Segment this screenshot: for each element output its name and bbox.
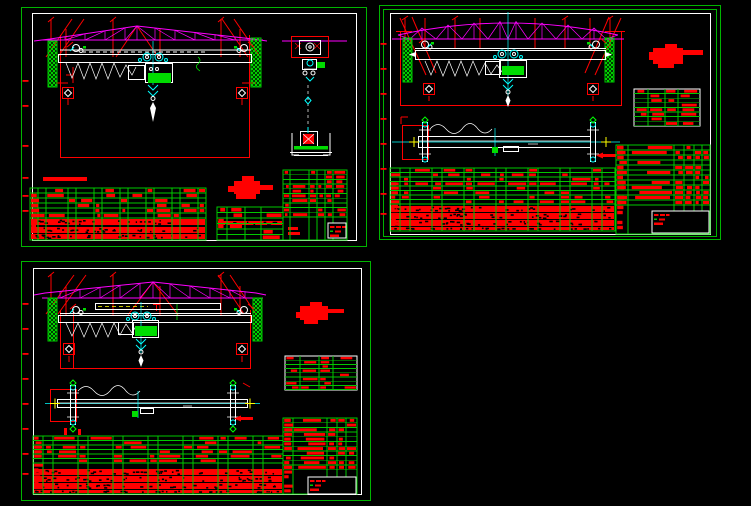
cad-table — [634, 89, 700, 126]
title-stamp — [296, 302, 344, 324]
hook-assembly — [148, 85, 158, 122]
cad-workspace — [0, 0, 751, 506]
hook-travel-marker-right — [237, 88, 248, 106]
hook-travel-marker-left — [63, 88, 74, 106]
girder-plan-view — [45, 380, 260, 432]
hook-travel-marker-right — [237, 344, 248, 363]
title-stamp — [649, 44, 703, 68]
girder-plan-view — [392, 117, 620, 162]
cad-table — [390, 168, 615, 231]
hook-travel-marker-left — [424, 84, 435, 102]
hoist-trolley — [129, 53, 173, 83]
hook-travel-marker-right — [588, 84, 599, 102]
cad-table — [30, 188, 206, 240]
sheet-1 — [20, 5, 368, 248]
sheet-2 — [378, 3, 723, 241]
pendant-squiggle — [196, 57, 200, 71]
sheet-3 — [20, 258, 372, 504]
cad-table — [285, 356, 357, 390]
data-tables — [390, 89, 710, 234]
festoon-cable — [66, 63, 136, 79]
cad-table — [217, 207, 283, 240]
data-tables — [33, 356, 357, 494]
hook-travel-marker-left — [64, 344, 75, 363]
runway-rail-box — [96, 304, 221, 321]
end-truck-left — [67, 42, 86, 53]
cad-table — [33, 436, 283, 494]
cad-table — [616, 145, 710, 234]
end-truck-left — [70, 304, 86, 315]
title-stamp — [228, 176, 273, 199]
cad-table — [283, 418, 357, 494]
margin-ticks — [23, 303, 29, 475]
margin-ticks — [23, 80, 29, 212]
end-view — [282, 37, 347, 156]
festoon-cable — [425, 61, 506, 76]
